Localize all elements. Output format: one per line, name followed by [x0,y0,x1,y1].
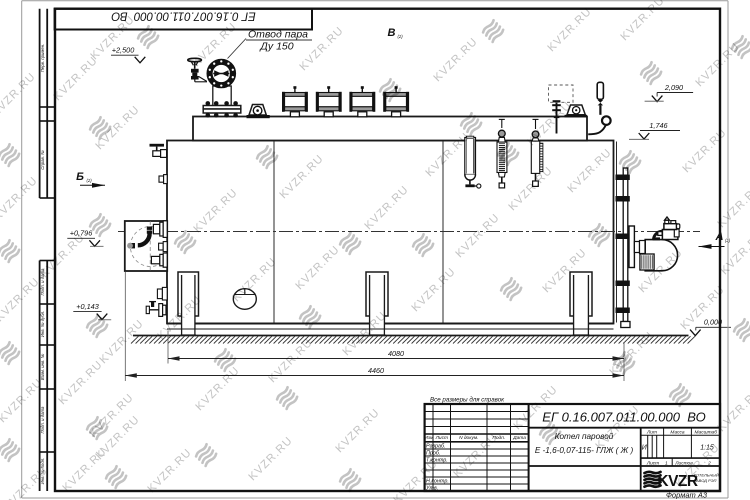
svg-text:Лит: Лит [646,429,657,435]
svg-text:(2): (2) [398,34,404,39]
svg-text:В: В [388,27,396,39]
svg-text:Е -1,6-0,07-115- ГЛЖ ( Ж ): Е -1,6-0,07-115- ГЛЖ ( Ж ) [535,446,634,455]
svg-text:Лист: Лист [646,460,659,466]
svg-text:4460: 4460 [368,366,384,375]
svg-text:Разраб.: Разраб. [426,443,446,449]
svg-text:Проб.: Проб. [426,450,440,456]
svg-text:Изм: Изм [424,435,434,441]
svg-text:ЗАВОД РЭП: ЗАВОД РЭП [694,478,717,483]
svg-text:Взам. инв. №: Взам. инв. № [40,353,45,380]
svg-text:Масса: Масса [670,429,685,435]
svg-text:(2): (2) [87,178,93,183]
svg-text:Б: Б [76,171,84,183]
svg-text:Утв.: Утв. [425,485,438,491]
svg-text:2,090: 2,090 [664,83,683,92]
svg-text:+0,143: +0,143 [76,302,99,311]
svg-text:Все размеры для справок: Все размеры для справок [430,396,505,403]
svg-text:N докум.: N докум. [459,435,478,441]
svg-text:Подп. и дата: Подп. и дата [40,406,45,434]
svg-text:4080: 4080 [388,349,404,358]
svg-text:Масштаб: Масштаб [694,429,717,435]
svg-text:Перв. примен.: Перв. примен. [40,44,45,73]
svg-text:1: 1 [665,460,668,466]
svg-text:Ду 150: Ду 150 [259,41,293,53]
svg-text:Инв. № дубл.: Инв. № дубл. [40,311,45,337]
svg-text:Формат А3: Формат А3 [666,491,708,500]
svg-text:Лист: Лист [435,435,448,441]
svg-text:1,746: 1,746 [649,121,668,130]
svg-text:Справ. №: Справ. № [40,150,45,170]
svg-text:Дата: Дата [512,435,526,441]
svg-text:Н.контр.: Н.контр. [426,478,449,484]
svg-text:+2,500: +2,500 [112,45,135,54]
